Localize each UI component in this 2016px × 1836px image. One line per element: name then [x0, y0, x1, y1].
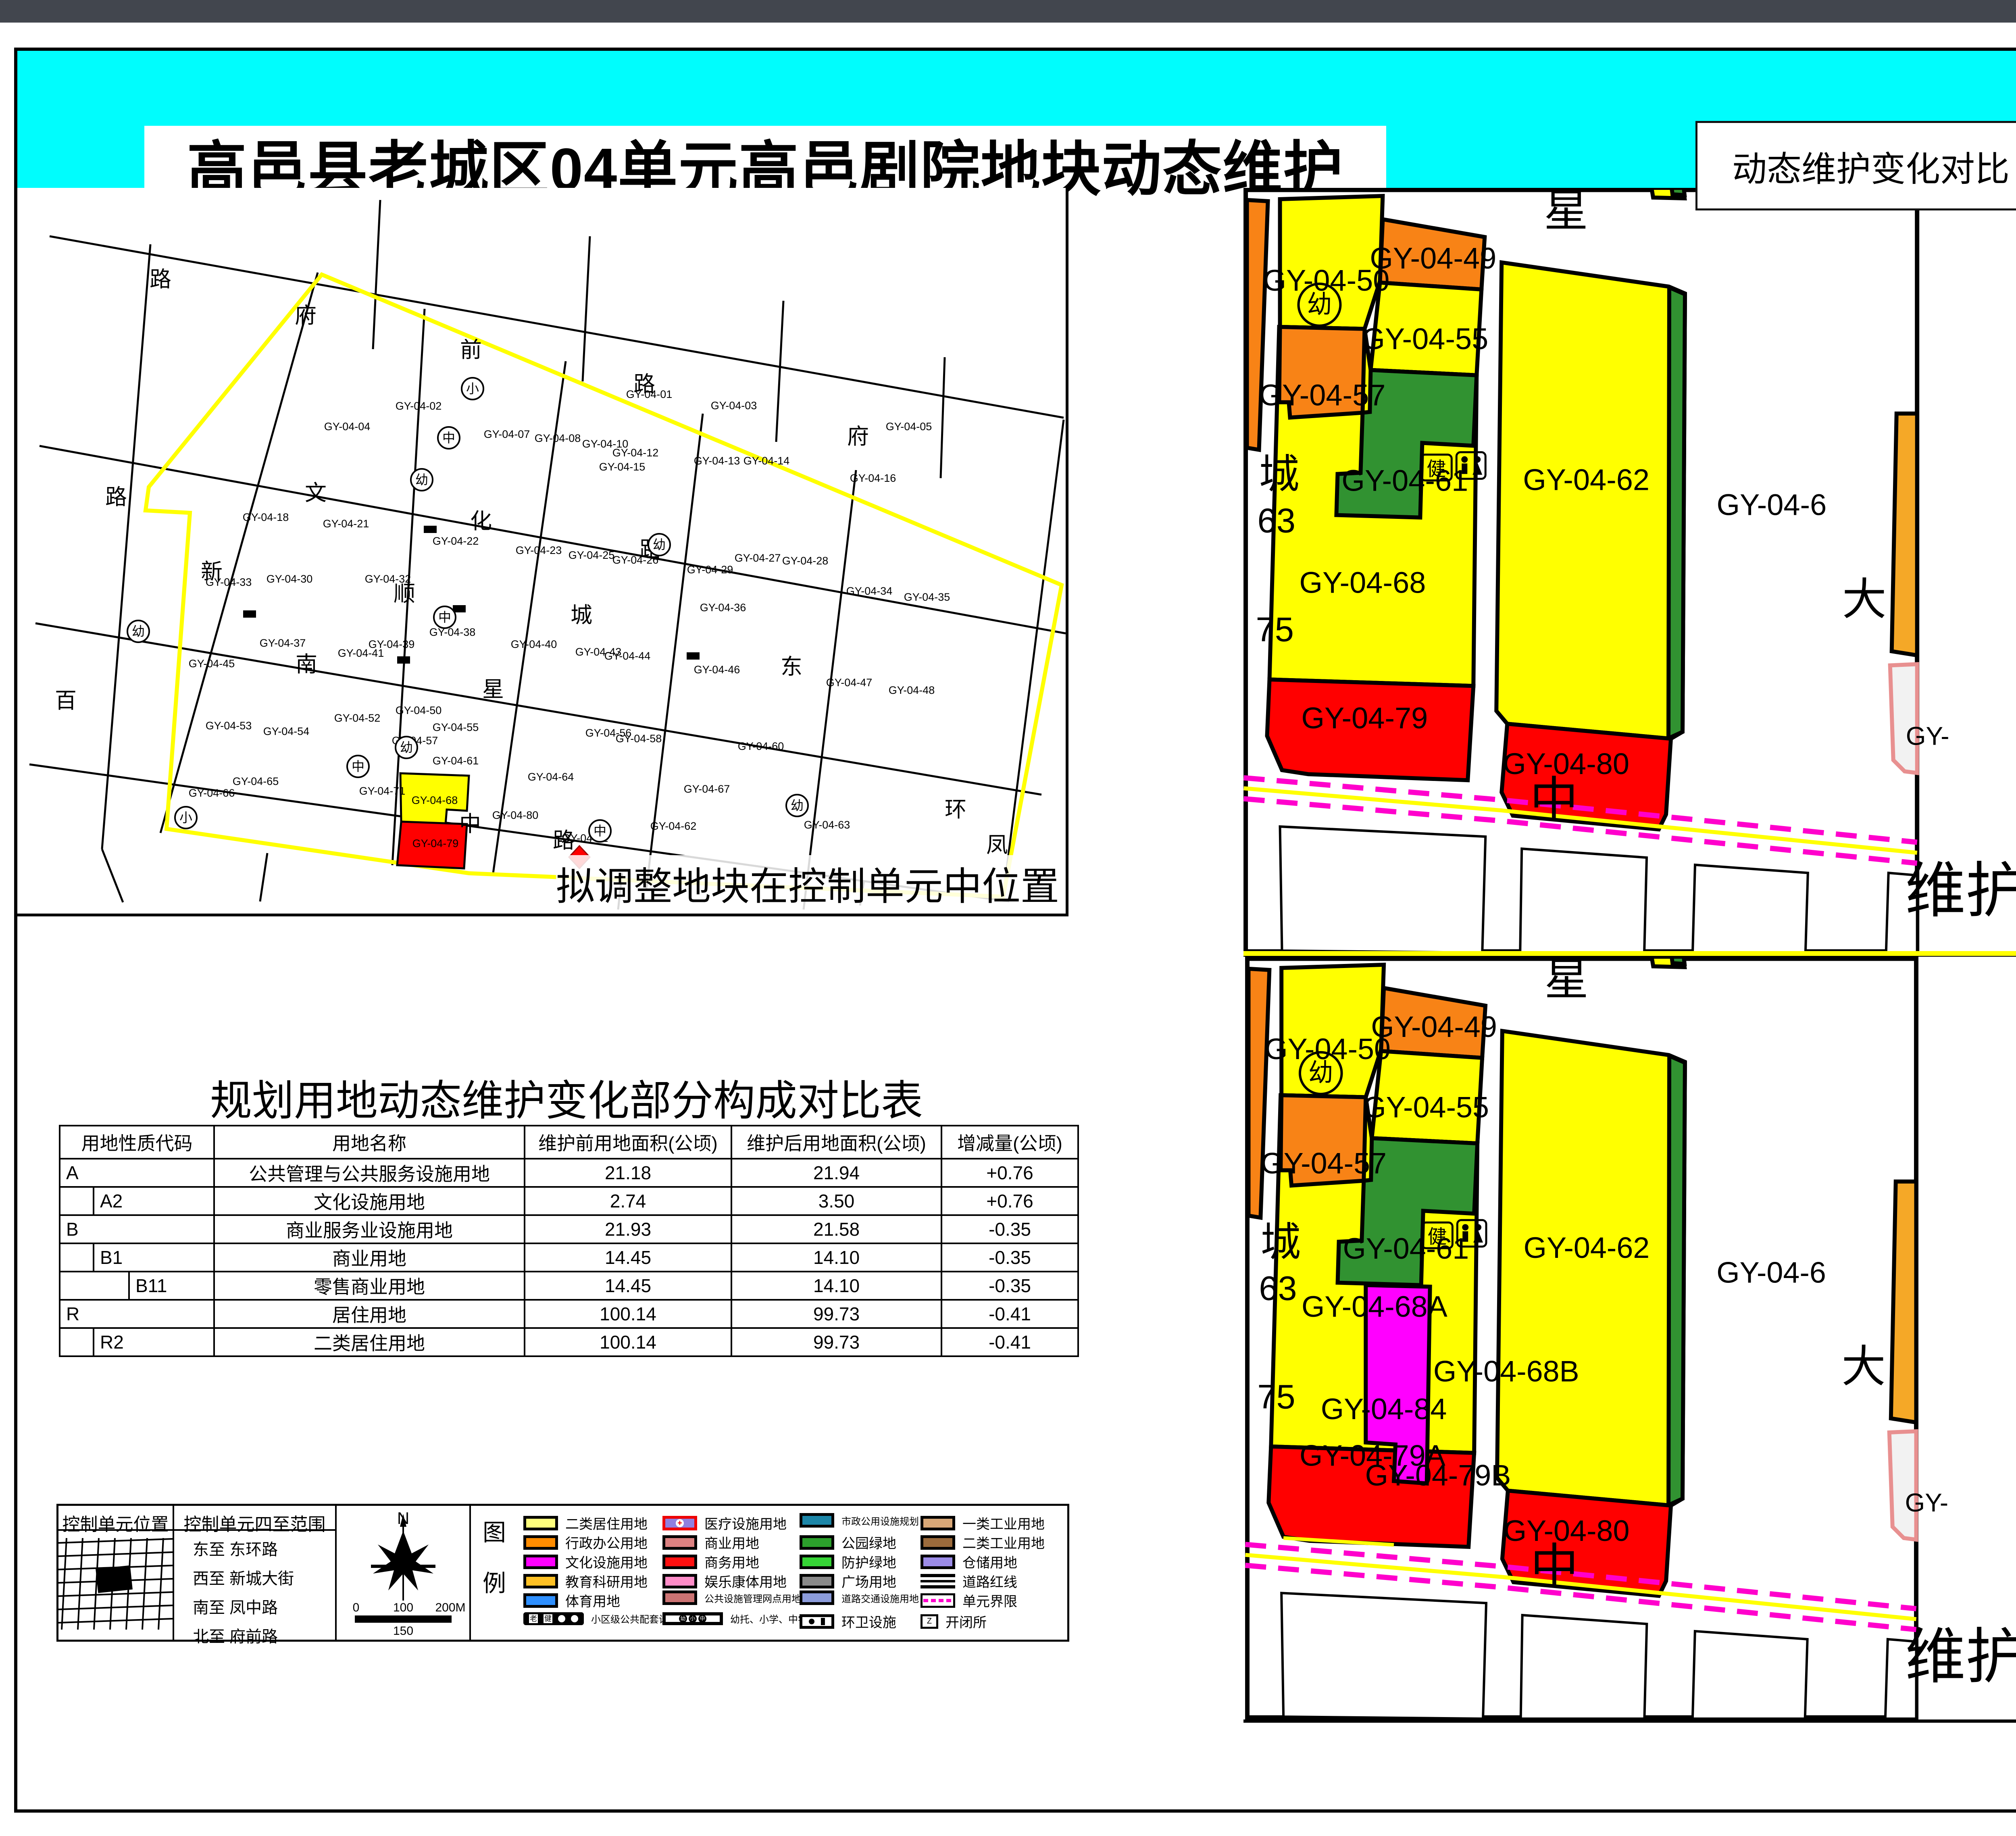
- plot-label: GY-04-71: [359, 785, 406, 797]
- legend-item-special: 环卫设施: [800, 1611, 896, 1631]
- plot-label: GY-04-05: [886, 420, 932, 433]
- table-row: A公共管理与公共服务设施用地21.1821.94+0.76: [60, 1159, 1078, 1187]
- plot-label: GY-04-84: [1321, 1392, 1447, 1426]
- toilet-figure: [1461, 456, 1468, 463]
- window-top-bar: [0, 0, 2016, 23]
- plot-label: 75: [1256, 610, 1294, 649]
- control-unit-location-header: 控制单元位置: [58, 1506, 173, 1531]
- land-plot-right-strip-amber: [1891, 1182, 1916, 1422]
- legend-item: 教育科研用地: [523, 1571, 648, 1591]
- plot-label: GY-04-55: [1362, 322, 1488, 356]
- plot-label: GY-04-13: [694, 455, 740, 467]
- area-delta: -0.41: [941, 1300, 1078, 1328]
- minimap-line: [58, 1619, 173, 1623]
- control-unit-location-cell: 控制单元位置: [58, 1506, 174, 1640]
- table-col-header: 增减量(公顷): [941, 1126, 1078, 1159]
- area-after: 21.94: [731, 1159, 941, 1187]
- plot-label: GY-04-30: [267, 573, 313, 585]
- road-name-char: 城: [571, 603, 592, 627]
- legend-item: 仓储用地: [921, 1552, 1017, 1572]
- land-name: 居住用地: [214, 1300, 525, 1328]
- facility-marker: [687, 652, 700, 660]
- plot-label: GY-04-54: [263, 725, 310, 737]
- color-swatch-icon: [800, 1590, 834, 1605]
- table-row: B1商业用地14.4514.10-0.35: [60, 1243, 1078, 1272]
- legend-grid: 二类居住用地行政办公用地文化设施用地教育科研用地体育用地老健小区级公共配套设施+…: [523, 1506, 1067, 1640]
- plot-label: GY-04-80: [492, 809, 539, 821]
- facility-marker: [243, 610, 256, 618]
- land-plot-GY-04-62: [1497, 1031, 1685, 1505]
- minimap-line: [58, 1552, 173, 1556]
- land-plot-right-strip-amber: [1892, 414, 1917, 656]
- plot-label: GY-04-52: [334, 712, 381, 724]
- legend-item: 娱乐康体用地: [662, 1571, 787, 1591]
- road-name-char: 新: [201, 560, 223, 584]
- area-before: 2.74: [525, 1187, 731, 1215]
- facility-marker: [397, 656, 410, 664]
- toilet-figure: [1475, 1224, 1481, 1230]
- legend-item: 单元界限: [921, 1590, 1017, 1610]
- plot-label: GY-04-03: [711, 400, 757, 412]
- land-plot-right-plot-gray: [1890, 664, 1917, 773]
- road-name-char: 路: [553, 828, 575, 853]
- plot-label: GY-04-48: [889, 684, 935, 696]
- color-swatch-icon: [800, 1513, 834, 1528]
- legend-label: 防护绿地: [841, 1552, 896, 1572]
- map-before: 幼健星城6375大中GY-04-49GY-04-50GY-04-55GY-04-…: [1243, 188, 2016, 953]
- legend-item-special: Z开闭所: [921, 1611, 987, 1631]
- color-swatch-icon: [800, 1555, 834, 1569]
- legend-item: 行政办公用地: [523, 1532, 648, 1552]
- plot-label: 63: [1258, 502, 1295, 540]
- plot-label: GY-04-65: [233, 775, 279, 787]
- plot-label: GY-04-46: [694, 664, 740, 676]
- community-facility-bar-icon: 老健: [523, 1612, 584, 1625]
- plot-label: GY-04-57: [1260, 1147, 1387, 1180]
- road-name-char: 化: [470, 509, 492, 533]
- plot-label: 大: [1842, 575, 1887, 624]
- table-row: A2文化设施用地2.743.50+0.76: [60, 1187, 1078, 1215]
- road-name-char: 环: [945, 797, 966, 822]
- plot-label: GY-04-68A: [1302, 1290, 1447, 1323]
- land-code: B11: [128, 1272, 213, 1299]
- road-name-char: 文: [305, 481, 327, 505]
- control-unit-extent-header: 控制单元四至范围: [174, 1506, 335, 1531]
- land-name: 二类居住用地: [214, 1328, 525, 1356]
- road-name-char: 路: [105, 485, 127, 509]
- plot-label: GY-04-80: [1504, 1514, 1630, 1547]
- plot-label: GY-04-50: [1263, 264, 1390, 297]
- land-plot-south-block-2: [1520, 849, 1647, 953]
- minimap-line: [58, 1592, 173, 1596]
- land-code: B: [60, 1216, 213, 1243]
- legend-title: 图例: [482, 1515, 506, 1601]
- color-swatch-icon: [662, 1555, 697, 1569]
- plot-label: GY-04-64: [528, 771, 574, 783]
- facility-circle-char: 小: [466, 381, 479, 396]
- area-before: 14.45: [525, 1243, 731, 1272]
- scalebar-tick: 100: [393, 1601, 413, 1614]
- color-swatch-icon: [921, 1555, 955, 1569]
- land-plot-green-strip: [1668, 1056, 1685, 1505]
- legend-item: 道路交通设施用地: [800, 1590, 919, 1605]
- legend-item: 市政公用设施规划: [800, 1513, 919, 1528]
- land-code: B1: [93, 1244, 213, 1271]
- land-plot-south-block-3: [1693, 865, 1808, 953]
- table-col-header: 维护后用地面积(公顷): [731, 1126, 941, 1159]
- land-plot-south-block-2: [1521, 1615, 1647, 1719]
- land-name: 文化设施用地: [214, 1187, 525, 1215]
- plot-label: GY-04-53: [206, 720, 252, 732]
- plot-label: 大: [1841, 1343, 1886, 1392]
- color-swatch-icon: [921, 1535, 955, 1550]
- road-name-char: 顺: [394, 582, 415, 606]
- road-name-char: 星: [482, 677, 504, 702]
- area-before: 14.45: [525, 1272, 731, 1300]
- plot-label: 星: [1544, 188, 1588, 236]
- color-swatch-icon: [662, 1535, 697, 1550]
- plot-label: GY-04-25: [569, 549, 615, 561]
- table-header-row: 用地性质代码用地名称维护前用地面积(公顷)维护后用地面积(公顷)增减量(公顷): [60, 1126, 1078, 1159]
- color-swatch-icon: [800, 1535, 834, 1550]
- plot-label: GY-04-37: [260, 637, 306, 649]
- legend-label: 一类工业用地: [962, 1513, 1045, 1533]
- plot-label: GY-04-55: [1363, 1090, 1489, 1124]
- legend-label: 娱乐康体用地: [704, 1571, 787, 1591]
- road-name-char: 府: [295, 304, 317, 328]
- plot-label: GY-04-07: [484, 428, 530, 440]
- road-name-char: 凤: [986, 833, 1008, 857]
- area-before: 21.18: [525, 1159, 731, 1187]
- color-swatch-icon: [523, 1593, 558, 1608]
- scalebar-tick: 0: [353, 1601, 360, 1614]
- table-col-header: 用地名称: [214, 1126, 525, 1159]
- facility-marker: [424, 526, 437, 533]
- road-name-char: 百: [55, 689, 77, 713]
- road-name-char: 路: [150, 267, 171, 291]
- scalebar-bar: [355, 1615, 452, 1623]
- after-label: 维护后: [1905, 1608, 2016, 1695]
- area-delta: -0.41: [941, 1328, 1078, 1356]
- color-swatch-icon: [921, 1516, 955, 1530]
- color-swatch-icon: [523, 1516, 558, 1530]
- plot-label: GY-04-02: [396, 400, 442, 412]
- facility-circle-char: 幼: [653, 537, 666, 552]
- plot-label: GY-04-68B: [1433, 1355, 1579, 1388]
- legend-item: 广场用地: [800, 1571, 896, 1591]
- legend-item: 道路红线: [921, 1571, 1017, 1591]
- plot-label: GY-04-58: [616, 733, 662, 745]
- plot-label: GY-04-15: [599, 461, 646, 473]
- boundary-line: 西至 新城大街: [193, 1565, 335, 1589]
- legend-item: +医疗设施用地: [662, 1513, 787, 1533]
- overview-map-panel: GY-04-01GY-04-02GY-04-03GY-04-04GY-04-05…: [17, 188, 1068, 916]
- plot-label: 城: [1259, 452, 1300, 497]
- plot-label: 城: [1260, 1220, 1301, 1265]
- area-after: 99.73: [731, 1328, 941, 1356]
- legend-label: 医疗设施用地: [704, 1513, 787, 1533]
- plot-label: 75: [1257, 1377, 1295, 1416]
- plot-label: GY-04-61: [433, 755, 479, 767]
- plot-label: GY-04-29: [687, 564, 733, 576]
- compass-and-scalebar: N0100200M150: [337, 1506, 469, 1636]
- facility-circle-char: 小: [179, 810, 192, 825]
- plot-label: GY-04-08: [535, 432, 581, 444]
- table-col-header: 维护前用地面积(公顷): [525, 1126, 731, 1159]
- boundary-line: 东至 东环路: [193, 1536, 335, 1560]
- color-swatch-icon: [523, 1555, 558, 1569]
- minimap-line: [62, 1538, 67, 1630]
- overview-caption: 拟调整地块在控制单元中位置: [556, 855, 1059, 911]
- facility-circle-char: 幼: [791, 798, 804, 813]
- plot-label: GY-04-79: [412, 837, 459, 849]
- area-after: 99.73: [731, 1300, 941, 1328]
- plot-label: GY-04-50: [396, 704, 442, 716]
- facility-circle-char: 幼: [132, 624, 145, 639]
- road-name-char: 府: [847, 425, 869, 449]
- before-label: 维护前: [1905, 842, 2016, 929]
- land-plot-GY-04-62: [1496, 262, 1685, 739]
- area-before: 100.14: [525, 1300, 731, 1328]
- area-delta: +0.76: [941, 1159, 1078, 1187]
- plot-label: GY-04-38: [429, 626, 476, 638]
- plot-label: GY-04-47: [826, 677, 873, 689]
- table-row: B商业服务业设施用地21.9321.58-0.35: [60, 1215, 1078, 1243]
- legend-item-special: 老健小区级公共配套设施: [523, 1611, 678, 1626]
- road-name-char: 路: [633, 372, 655, 396]
- plot-label: GY-04-36: [700, 602, 746, 614]
- control-unit-minimap: [58, 1531, 173, 1636]
- plot-label: GY-04-60: [738, 740, 784, 752]
- legend-label: 单元界限: [962, 1590, 1017, 1610]
- land-use-comparison-table: 用地性质代码用地名称维护前用地面积(公顷)维护后用地面积(公顷)增减量(公顷) …: [59, 1125, 1079, 1357]
- road-name-char: 南: [296, 652, 317, 677]
- road-name-char: 东: [781, 655, 802, 679]
- legend-label: 公园绿地: [841, 1532, 896, 1552]
- plot-label: GY-04-18: [243, 511, 289, 523]
- land-code: R2: [93, 1329, 213, 1355]
- legend-item: 文化设施用地: [523, 1552, 648, 1572]
- area-delta: -0.35: [941, 1272, 1078, 1300]
- sanitation-icon: [800, 1614, 834, 1629]
- plot-label: GY-04-67: [684, 783, 730, 795]
- legend-label: 环卫设施: [841, 1611, 896, 1631]
- table-title: 规划用地动态维护变化部分构成对比表: [56, 1066, 1077, 1127]
- info-strip: 控制单元位置 控制单元四至范围 东至 东环路西至 新城大街南至 凤中路北至 府前…: [56, 1504, 1069, 1642]
- plot-label: GY-04-6: [1716, 1256, 1826, 1289]
- color-swatch-icon: [800, 1574, 834, 1588]
- map-after: 幼健星城6375大中GY-04-49GY-04-50GY-04-55GY-04-…: [1243, 957, 2016, 1719]
- area-before: 21.93: [525, 1215, 731, 1243]
- land-plot-south-block-1: [1280, 826, 1486, 953]
- legend-label: 道路红线: [962, 1571, 1017, 1591]
- plot-label: 63: [1259, 1269, 1297, 1307]
- facility-circle-char: 中: [352, 759, 364, 774]
- school-pill-icon: 幼小中: [662, 1612, 723, 1625]
- facility-circle-char: 幼: [415, 473, 428, 487]
- legend-label: 广场用地: [841, 1571, 896, 1591]
- legend-label: 公共设施管理网点用地: [704, 1591, 801, 1605]
- plot-label: GY-04-50: [1264, 1032, 1391, 1066]
- panel-divider-line: [1243, 951, 2016, 956]
- boundary-line: 南至 凤中路: [193, 1595, 335, 1618]
- legend-item: 体育用地: [523, 1590, 620, 1610]
- plot-label: GY-04-62: [1524, 1231, 1650, 1264]
- facility-circle-char: 中: [442, 431, 455, 445]
- plot-label: GY-04-21: [323, 518, 369, 530]
- plot-label: GY-04-68: [412, 794, 458, 806]
- legend-item: 公共设施管理网点用地: [662, 1590, 801, 1605]
- land-name: 公共管理与公共服务设施用地: [214, 1159, 525, 1187]
- land-code: A: [60, 1159, 213, 1186]
- plot-label: GY-04-41: [338, 647, 384, 659]
- legend-label: 文化设施用地: [565, 1552, 648, 1572]
- area-delta: -0.35: [941, 1243, 1078, 1272]
- plot-label: GY-04-66: [189, 787, 235, 799]
- table-row: R居住用地100.1499.73-0.41: [60, 1300, 1078, 1328]
- legend-label: 仓储用地: [962, 1552, 1017, 1572]
- facility-circle-char: 中: [438, 610, 451, 624]
- plot-label: GY-04-22: [433, 535, 479, 547]
- medical-swatch-icon: +: [662, 1516, 697, 1530]
- legend-label: 二类居住用地: [565, 1513, 648, 1533]
- legend-item: 公园绿地: [800, 1532, 896, 1552]
- plot-label: GY-04-79: [1301, 701, 1428, 735]
- legend-label: 二类工业用地: [962, 1532, 1045, 1552]
- facility-circle-char: 中: [594, 824, 606, 838]
- table-row: B11零售商业用地14.4514.10-0.35: [60, 1272, 1078, 1300]
- land-plot-green-strip: [1668, 287, 1685, 738]
- plot-label: GY-04-16: [850, 472, 896, 484]
- land-plot-south-block-1: [1281, 1593, 1486, 1719]
- plot-label: GY-04-61: [1341, 464, 1468, 498]
- legend-label: 行政办公用地: [565, 1532, 648, 1552]
- unit-boundary-swatch-icon: [921, 1593, 955, 1608]
- legend-item-special: 幼小中幼托、小学、中学: [662, 1611, 808, 1626]
- plot-label: GY-04-68: [1299, 566, 1426, 599]
- legend-cell: 图例 二类居住用地行政办公用地文化设施用地教育科研用地体育用地老健小区级公共配套…: [471, 1506, 1067, 1640]
- toilet-figure: [1474, 456, 1481, 463]
- plot-label: 中: [1531, 1540, 1579, 1593]
- plot-label: 中: [1530, 773, 1578, 827]
- legend-label: 商业用地: [704, 1532, 759, 1552]
- map-before-panel: 幼健星城6375大中GY-04-49GY-04-50GY-04-55GY-04-…: [1243, 188, 2016, 957]
- land-code: R: [60, 1301, 213, 1327]
- land-plot-top-sliver-green: [1672, 188, 1685, 195]
- plot-label: GY-04-62: [650, 820, 697, 832]
- area-after: 14.10: [731, 1272, 941, 1300]
- switch-station-icon: Z: [921, 1614, 938, 1629]
- scalebar-mid-tick: 150: [393, 1624, 413, 1636]
- plot-label: GY-: [1906, 721, 1949, 750]
- area-delta: -0.35: [941, 1215, 1078, 1243]
- area-after: 21.58: [731, 1215, 941, 1243]
- legend-label: 商务用地: [704, 1552, 759, 1572]
- minimap-line: [78, 1538, 83, 1630]
- plot-label: GY-04-80: [1503, 747, 1629, 781]
- legend-label: 体育用地: [565, 1590, 620, 1610]
- color-swatch-icon: [662, 1590, 697, 1605]
- plot-label: GY-04-63: [804, 819, 850, 831]
- minimap-unit-blob: [96, 1565, 133, 1593]
- color-swatch-icon: [662, 1574, 697, 1588]
- plot-label: GY-04-34: [846, 585, 893, 597]
- overview-map: GY-04-01GY-04-02GY-04-03GY-04-04GY-04-05…: [17, 188, 1066, 914]
- compare-label-box: 动态维护变化对比: [1695, 121, 2016, 210]
- legend-item: 一类工业用地: [921, 1513, 1045, 1533]
- color-swatch-icon: [523, 1574, 558, 1588]
- area-after: 14.10: [731, 1243, 941, 1272]
- legend-label: 教育科研用地: [565, 1571, 648, 1591]
- legend-label: 开闭所: [946, 1611, 987, 1631]
- color-swatch-icon: [523, 1535, 558, 1550]
- plot-label: GY-04-45: [189, 658, 235, 670]
- road-name-char: 前: [460, 338, 482, 362]
- boundary-line: 北至 府前路: [193, 1624, 335, 1647]
- legend-item: 商业用地: [662, 1532, 759, 1552]
- road-name-char: 中: [459, 812, 481, 836]
- plot-label: GY-04-35: [904, 591, 950, 603]
- table-col-header: 用地性质代码: [60, 1126, 214, 1159]
- land-name: 商业服务业设施用地: [214, 1215, 525, 1243]
- plot-label: 星: [1544, 957, 1589, 1005]
- plot-label: GY-04-57: [1259, 379, 1386, 412]
- legend-item: 二类工业用地: [921, 1532, 1045, 1552]
- plot-label: GY-04-44: [604, 650, 651, 662]
- plot-label: GY-04-62: [1523, 463, 1649, 497]
- legend-label: 道路交通设施用地: [841, 1591, 919, 1605]
- scalebar-tick: 200M: [435, 1601, 465, 1614]
- area-after: 3.50: [731, 1187, 941, 1215]
- table-row: R2二类居住用地100.1499.73-0.41: [60, 1328, 1078, 1356]
- plot-label: GY-04-04: [324, 420, 371, 433]
- control-unit-extent-cell: 控制单元四至范围 东至 东环路西至 新城大街南至 凤中路北至 府前路: [174, 1506, 337, 1640]
- plot-label: GY-04-61: [1343, 1232, 1469, 1265]
- land-plot-right-plot-gray: [1889, 1431, 1916, 1540]
- land-plot-top-sliver-green: [1672, 957, 1685, 964]
- plot-label: GY-04-6: [1717, 488, 1827, 522]
- compass-scale-cell: N0100200M150: [337, 1506, 471, 1640]
- plot-label: GY-04-28: [782, 555, 829, 567]
- land-code: A2: [93, 1188, 213, 1214]
- area-before: 100.14: [525, 1328, 731, 1356]
- toilet-figure: [1462, 1224, 1468, 1230]
- compare-label: 动态维护变化对比: [1697, 123, 2016, 208]
- plot-label: GY-04-79B: [1365, 1458, 1511, 1492]
- plot-label: GY-04-14: [744, 455, 790, 467]
- area-delta: +0.76: [941, 1187, 1078, 1215]
- plot-label: GY-: [1905, 1488, 1948, 1517]
- road-redline-swatch-icon: [921, 1574, 955, 1588]
- plot-label: GY-04-55: [433, 721, 479, 733]
- plot-label: GY-04-12: [612, 447, 659, 459]
- facility-circle-char: 幼: [400, 740, 413, 755]
- legend-label: 幼托、小学、中学: [730, 1611, 808, 1626]
- land-name: 商业用地: [214, 1243, 525, 1272]
- legend-label: 市政公用设施规划: [841, 1513, 919, 1528]
- land-name: 零售商业用地: [214, 1272, 525, 1300]
- plot-label: GY-04-27: [735, 552, 781, 564]
- minimap-line: [142, 1538, 147, 1630]
- plot-label: GY-04-23: [516, 544, 562, 556]
- legend-item: 二类居住用地: [523, 1513, 648, 1533]
- legend-item: 商务用地: [662, 1552, 759, 1572]
- map-after-panel: 幼健星城6375大中GY-04-49GY-04-50GY-04-55GY-04-…: [1243, 957, 2016, 1723]
- land-plot-south-block-3: [1693, 1631, 1808, 1719]
- legend-item: 防护绿地: [800, 1552, 896, 1572]
- minimap-line: [58, 1605, 173, 1609]
- plot-label: GY-04-40: [511, 638, 557, 650]
